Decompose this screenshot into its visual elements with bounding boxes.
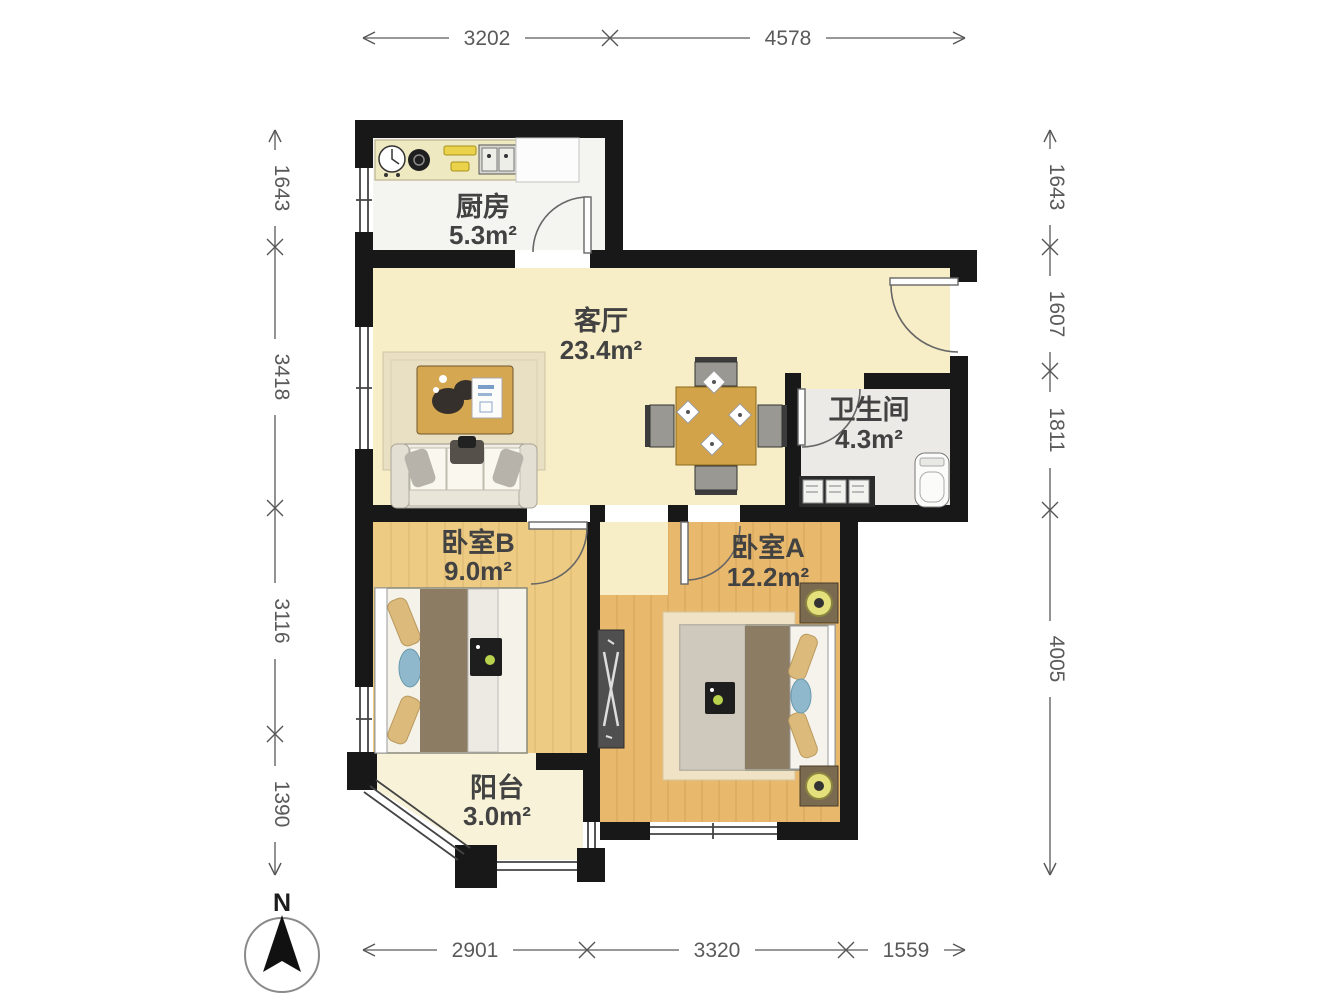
bed-b <box>375 588 527 753</box>
left-wall-seg1 <box>355 120 373 168</box>
bedroom-a-right-wall <box>840 522 858 840</box>
dimension-top: 3202 4578 <box>363 25 965 51</box>
dim-top-1: 3202 <box>464 27 511 50</box>
bedroom-a-label: 卧室A <box>731 532 805 563</box>
kitchen-bottom-wall <box>355 250 515 268</box>
dim-right-3: 1811 <box>1045 407 1068 452</box>
tv-cabinet <box>417 366 513 434</box>
north-compass: N <box>245 889 319 992</box>
bathroom-label: 卫生间 <box>829 395 910 425</box>
balcony-corner-post-right <box>577 848 605 882</box>
dim-right-4: 4005 <box>1045 636 1068 683</box>
bed-a <box>680 625 835 770</box>
bedroom-b-area: 9.0m² <box>444 556 512 586</box>
floorplan-page: 厨房 5.3m² 客厅 23.4m² 卫生间 4.3m² 卧室B 9.0m² 卧… <box>0 0 1333 1000</box>
balcony-bottom-window <box>497 862 577 870</box>
bathroom-vanity <box>799 476 875 507</box>
living-room-area: 23.4m² <box>560 335 643 365</box>
bedroom-a-bottom-wall-right <box>777 822 858 840</box>
dimension-left: 1643 3418 3116 1390 <box>262 130 293 875</box>
dim-top-2: 4578 <box>765 27 812 50</box>
floorplan-drawing: 厨房 5.3m² 客厅 23.4m² 卫生间 4.3m² 卧室B 9.0m² 卧… <box>0 0 1333 1000</box>
bedroom-b-window <box>355 687 373 752</box>
bedroom-b-bottom-wall <box>536 753 600 770</box>
kitchen-window <box>355 168 373 232</box>
dim-left-3: 3116 <box>270 598 293 643</box>
bedroom-a-bath-wall <box>740 505 968 522</box>
dimension-right: 1643 1607 1811 4005 <box>1037 130 1068 875</box>
north-letter: N <box>273 889 291 917</box>
dim-bottom-2: 3320 <box>694 939 741 962</box>
dim-bottom-3: 1559 <box>883 939 930 962</box>
fridge <box>516 138 579 182</box>
dining-table <box>676 387 756 465</box>
magazine <box>472 378 502 418</box>
bedroom-a-area: 12.2m² <box>727 562 810 592</box>
bathroom-area: 4.3m² <box>835 424 903 454</box>
bathroom-top-wall-right <box>864 373 968 389</box>
balcony-label: 阳台 <box>470 772 524 803</box>
toilet-icon <box>915 453 949 507</box>
bedroom-a-bottom-wall-left <box>600 822 650 840</box>
kitchen-right-wall <box>605 120 623 268</box>
kitchen-area: 5.3m² <box>449 220 517 250</box>
bedroom-b-furniture <box>375 588 527 753</box>
left-wall-seg2 <box>355 232 373 327</box>
dim-right-1: 1643 <box>1045 164 1068 211</box>
dimension-bottom: 2901 3320 1559 <box>363 937 965 963</box>
balcony-corner-post-left <box>347 752 377 790</box>
bedroom-a-window <box>650 822 777 840</box>
kitchen-sink-icon <box>479 145 516 174</box>
hallway-post-left <box>590 505 605 522</box>
wardrobe <box>598 630 624 748</box>
hallway-floor <box>600 522 668 595</box>
dim-left-2: 3418 <box>270 354 293 401</box>
bedroom-a-door-stub <box>668 505 688 522</box>
kitchen-label: 厨房 <box>456 192 510 222</box>
balcony-area: 3.0m² <box>463 801 531 831</box>
left-wall-seg3 <box>355 449 373 687</box>
living-top-wall <box>605 250 977 268</box>
living-room-window <box>355 327 373 449</box>
balcony-side-window <box>583 822 600 848</box>
kitchen-top-wall <box>355 120 623 138</box>
kitchen-door-post <box>590 250 605 268</box>
sofa <box>391 436 537 508</box>
dim-right-2: 1607 <box>1045 291 1068 338</box>
living-room-label: 客厅 <box>574 305 628 336</box>
balcony-right-wall <box>583 770 600 822</box>
nightstand-bottom <box>800 766 838 806</box>
dim-left-4: 1390 <box>270 781 293 828</box>
bedroom-b-label: 卧室B <box>441 527 515 558</box>
kitchen-furniture <box>375 138 579 182</box>
dim-bottom-1: 2901 <box>452 939 499 962</box>
dim-left-1: 1643 <box>270 165 293 212</box>
